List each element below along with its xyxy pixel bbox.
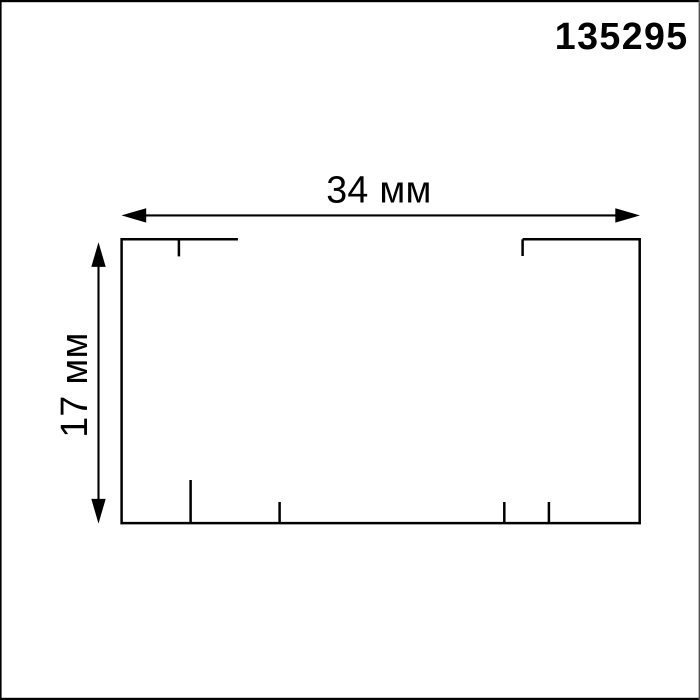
svg-text:17 мм: 17 мм xyxy=(53,332,95,437)
svg-text:34 мм: 34 мм xyxy=(326,168,431,210)
svg-text:135295: 135295 xyxy=(555,15,689,57)
